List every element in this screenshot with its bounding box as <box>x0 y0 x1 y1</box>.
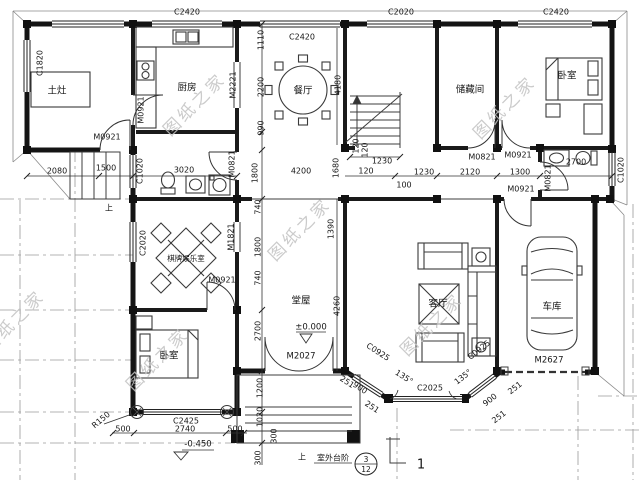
labels: 土灶 厨房 餐厅 储藏间 卧室 棋牌娱乐室 堂屋 客厅 卧室 车库 室外台阶 上… <box>36 8 626 475</box>
window-tag-c2420: C2420 <box>174 8 200 17</box>
dim-300: 300 <box>254 450 263 465</box>
dim-1300: 1300 <box>510 168 530 177</box>
dim-2120: 2120 <box>460 168 480 177</box>
window-tag-c0925: C0925 <box>365 341 392 363</box>
floor-plan-drawing: 图纸之家 图纸之家 图纸之家 图纸之家 图纸之家 图纸之家 土灶 厨房 餐厅 储… <box>0 0 640 480</box>
room-label-stove: 土灶 <box>47 85 67 97</box>
dim-100: 100 <box>396 181 411 190</box>
dim-740: 740 <box>254 199 263 214</box>
dim-500: 500 <box>227 425 242 434</box>
dim-2700: 2700 <box>566 158 586 167</box>
bed-top-right <box>546 58 602 134</box>
room-label-dining: 餐厅 <box>293 85 313 97</box>
dim-251: 251 <box>490 409 508 426</box>
window-tag-c1020: C1020 <box>136 158 145 184</box>
window-tag-c2420: C2420 <box>543 8 569 17</box>
dim-4260: 4260 <box>333 296 342 316</box>
door-tag-m0821: M0821 <box>228 150 237 177</box>
dim-1500: 1500 <box>96 164 116 173</box>
door-tag-m1821: M1821 <box>227 223 236 250</box>
dim-1390: 1390 <box>327 219 336 239</box>
room-label-bedroom-bl: 卧室 <box>159 350 178 362</box>
dim-4200: 4200 <box>291 167 311 176</box>
window-tag-c2020: C2020 <box>139 230 148 256</box>
door-tag-m0921: M0921 <box>507 185 534 194</box>
window-tag-c2420: C2420 <box>289 33 315 42</box>
section-mark: 1 <box>417 458 425 473</box>
detail-number: 3 <box>364 455 369 464</box>
dim-2700: 2700 <box>254 321 263 341</box>
room-label-bedroom-tr: 卧室 <box>557 70 576 82</box>
dim-1020: 1020 <box>256 407 265 427</box>
dim-1230: 1230 <box>372 157 392 166</box>
watermark: 图纸之家 <box>160 70 231 141</box>
outdoor-steps <box>70 152 360 443</box>
dim-1800: 1800 <box>251 163 260 183</box>
window-tag-c1020: C1020 <box>617 157 626 183</box>
dim-990: 990 <box>257 120 266 135</box>
dim-r150: R150 <box>90 410 112 430</box>
dim-2740: 2740 <box>175 425 195 434</box>
watermarks: 图纸之家 图纸之家 图纸之家 图纸之家 图纸之家 图纸之家 <box>0 70 540 396</box>
room-label-kitchen: 厨房 <box>177 82 196 94</box>
window-tag-c2025: C2025 <box>417 384 443 393</box>
floor-plan-page: 图纸之家 图纸之家 图纸之家 图纸之家 图纸之家 图纸之家 土灶 厨房 餐厅 储… <box>0 0 640 480</box>
watermark: 图纸之家 <box>0 287 49 358</box>
dim-2080: 2080 <box>47 167 67 176</box>
dim-4180: 4180 <box>334 75 343 95</box>
dim-1230: 1230 <box>414 168 434 177</box>
door-tag-m0921: M0921 <box>504 151 531 160</box>
watermark: 图纸之家 <box>265 195 336 266</box>
door-tag-m2221: M2221 <box>229 71 238 98</box>
dim-251: 251 <box>506 380 524 397</box>
dim-120: 120 <box>361 142 370 157</box>
door-tag-m2027: M2027 <box>287 352 316 362</box>
room-label-living: 客厅 <box>428 298 448 310</box>
dim-500: 500 <box>115 425 130 434</box>
dim-1200: 1200 <box>256 378 265 398</box>
car <box>522 237 582 350</box>
dim-135deg: 135° <box>393 368 414 386</box>
dim-900: 900 <box>481 392 499 409</box>
dim-1110: 1110 <box>257 30 266 50</box>
room-label-hall: 堂屋 <box>291 295 310 307</box>
bathroom-left-fixtures <box>161 172 230 195</box>
dim-300: 300 <box>270 428 279 443</box>
detail-sheet: 12 <box>361 465 371 474</box>
dim-1680: 1680 <box>332 158 341 178</box>
window-tag-c1820: C1820 <box>36 50 45 76</box>
room-label-garage: 车库 <box>542 301 562 313</box>
door-tag-m0821: M0821 <box>468 153 495 162</box>
door-tag-m2627: M2627 <box>535 356 564 366</box>
room-label-game-room: 棋牌娱乐室 <box>167 253 205 263</box>
dim-120: 120 <box>352 138 361 153</box>
door-tag-m0821: M0821 <box>544 164 553 191</box>
dim-2200: 2200 <box>257 77 266 97</box>
level-porch: -0.450 <box>184 440 211 450</box>
level-ground: ±0.000 <box>295 323 326 333</box>
dim-120: 120 <box>358 167 373 176</box>
label-outdoor-steps: 室外台阶 <box>317 453 349 463</box>
dim-740: 740 <box>254 270 263 285</box>
label-up-front: 上 <box>298 453 306 462</box>
door-tag-m0921: M0921 <box>93 133 120 142</box>
door-tag-m0921: M0921 <box>208 276 235 285</box>
door-tag-m0921: M0921 <box>137 96 146 123</box>
room-label-storage: 储藏间 <box>456 84 485 96</box>
label-up-left: 上 <box>105 204 113 213</box>
dim-3020: 3020 <box>174 166 194 175</box>
toilet <box>162 172 175 188</box>
dim-135deg: 135° <box>453 368 474 387</box>
dim-251: 251 <box>363 399 381 415</box>
window-tag-c2020: C2020 <box>388 8 414 17</box>
dim-1800: 1800 <box>254 237 263 257</box>
